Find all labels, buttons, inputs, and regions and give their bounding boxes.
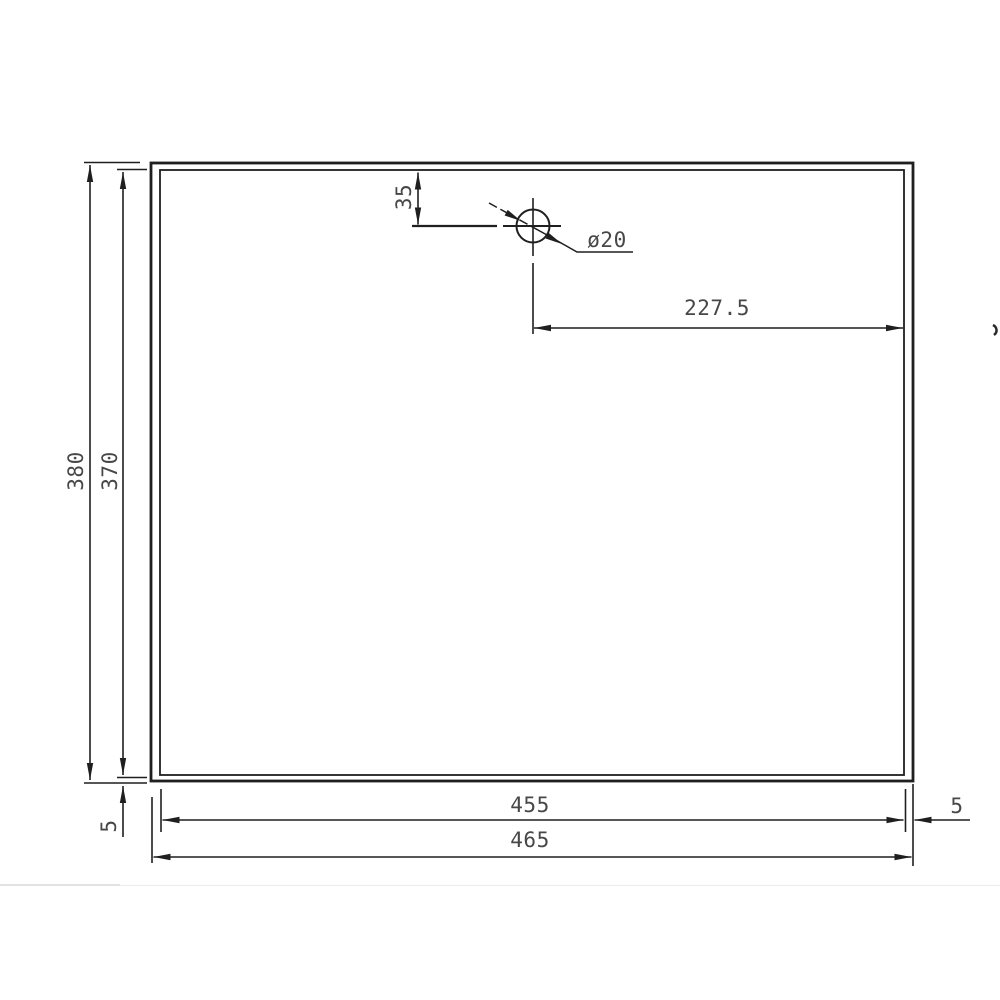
leader-arrow — [546, 233, 564, 247]
dim-inner-height: 370 — [98, 170, 147, 778]
technical-drawing: 380 370 5 35 227.5 455 465 5 — [0, 0, 1000, 1000]
dim-outer-width-label: 465 — [510, 828, 549, 852]
dim-inner-width: 455 — [161, 789, 906, 832]
dim-bottom-margin-label: 5 — [97, 819, 121, 832]
dim-right-margin-label: 5 — [950, 794, 963, 818]
dim-hole-top-offset: 35 — [392, 173, 497, 227]
faucet-hole — [503, 198, 561, 334]
panel-outline — [151, 163, 913, 781]
outer-panel-rect — [151, 163, 913, 781]
inner-panel-rect — [160, 170, 904, 775]
dim-hole-top-offset-label: 35 — [392, 184, 416, 210]
dim-hole-center-offset-label: 227.5 — [684, 296, 750, 320]
dim-right-margin: 5 — [915, 794, 971, 820]
hole-diameter-label: ø20 — [587, 228, 626, 252]
dim-bottom-margin: 5 — [97, 786, 123, 837]
dim-inner-height-label: 370 — [98, 451, 122, 490]
dim-outer-height-label: 380 — [64, 451, 88, 490]
stray-mark — [993, 325, 997, 335]
dim-hole-center-to-edge: 227.5 — [534, 296, 903, 328]
dim-inner-width-label: 455 — [510, 793, 549, 817]
hole-diameter-callout: ø20 — [489, 203, 633, 252]
